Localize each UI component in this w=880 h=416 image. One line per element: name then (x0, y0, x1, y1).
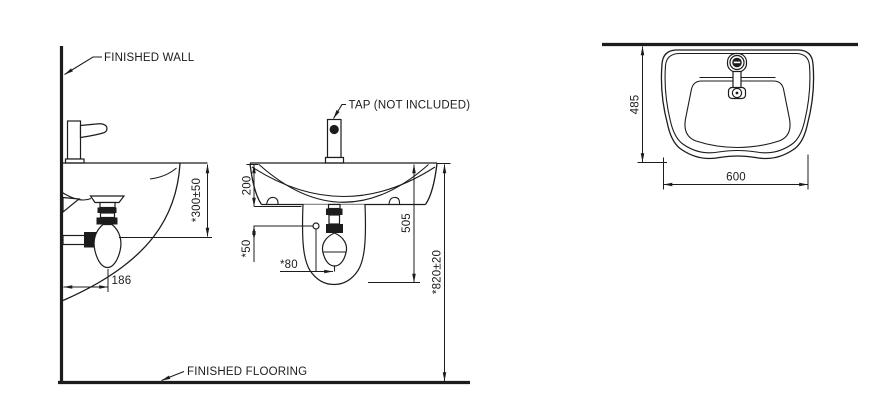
drawing-canvas: FINISHED WALL FINISHED FLOORING (0, 0, 880, 416)
tailpipe-front (329, 205, 341, 209)
finished-flooring-leader (162, 372, 185, 381)
dim-side-outlet-from-wall: 186 (64, 269, 132, 292)
dim-text-505: 505 (401, 213, 413, 233)
basin-front-view (250, 163, 437, 205)
dim-text-186: 186 (112, 275, 132, 287)
trap-side-view (91, 196, 125, 268)
finished-wall-label: FINISHED WALL (104, 52, 195, 64)
dim-front-pedestal-height: 505 (368, 165, 420, 283)
dim-text-485: 485 (630, 95, 642, 115)
dim-text-820: *820±20 (432, 250, 444, 294)
tap-stem-top (733, 72, 741, 89)
dim-front-fixing-offset: *50 (241, 226, 254, 262)
dim-front-rim-height: *820±20 (432, 164, 451, 382)
tap-base-dot (736, 92, 739, 95)
fixing-hole-circle (313, 223, 319, 229)
tailpipe-front-2 (329, 215, 340, 224)
waste-pipe-side (63, 232, 98, 248)
finished-wall-leader (65, 57, 103, 75)
tap-side-view (66, 121, 107, 163)
top-view: 485 600 (602, 45, 858, 190)
fixing-lug-right (389, 197, 400, 204)
trap-nut-side (97, 218, 118, 225)
trap-nut-front (326, 224, 343, 233)
tap-front-view (326, 120, 344, 164)
fixing-lug-left (267, 197, 279, 204)
dim-text-200: 200 (242, 176, 254, 196)
drain-flange-side (91, 196, 125, 203)
basin-side-view (62, 163, 208, 301)
dim-top-width: 600 (664, 155, 809, 190)
dim-text-300: *300±50 (191, 178, 203, 222)
tap-leader (334, 105, 347, 119)
tailpipe-side-2 (101, 213, 115, 218)
dim-text-600: 600 (726, 172, 746, 184)
tap-label: TAP (NOT INCLUDED) (349, 100, 471, 112)
washbasin-installation-drawing: FINISHED WALL FINISHED FLOORING (0, 0, 880, 416)
front-view: TAP (NOT INCLUDED) (241, 100, 470, 382)
tap-top-view (728, 54, 747, 99)
trap-bottle-side (94, 225, 121, 268)
bowl-front-arc-outer (252, 167, 435, 197)
wall-bracket (63, 198, 79, 213)
basin-apron-line (150, 168, 177, 179)
tailpipe-side (100, 203, 115, 208)
tap-spout-side (81, 124, 107, 138)
dim-text-80: *80 (280, 259, 298, 271)
seal-band-side (98, 208, 117, 214)
seal-band-front (326, 209, 343, 216)
outlet-pipe (63, 236, 86, 245)
tap-handle-dot (330, 125, 339, 134)
finished-flooring-label: FINISHED FLOORING (187, 366, 307, 378)
tap-body-side (68, 121, 81, 159)
dim-text-50: *50 (241, 240, 253, 258)
tap-base-front (326, 158, 344, 164)
